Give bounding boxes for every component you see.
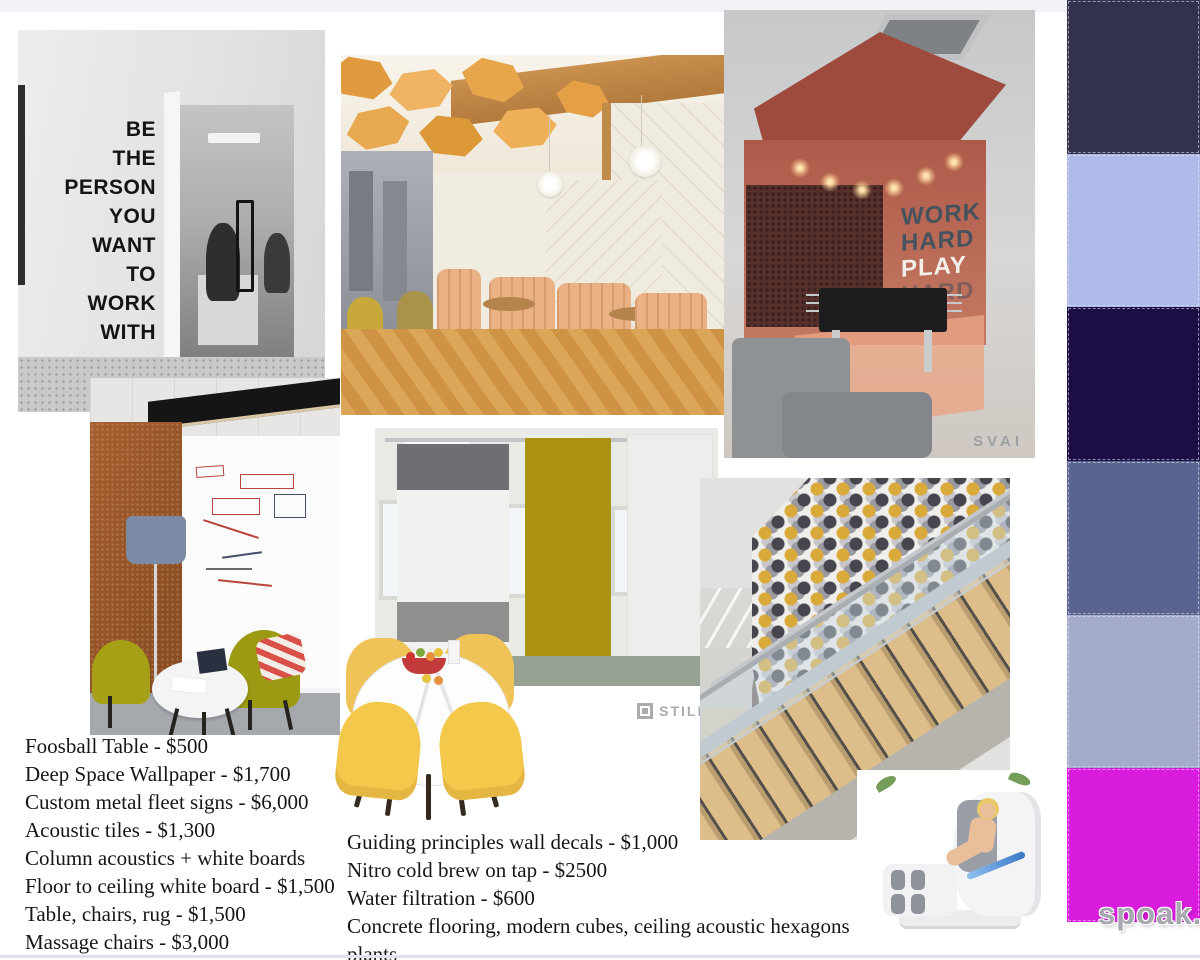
price-line[interactable]: Acoustic tiles - $1,300 [25, 816, 335, 844]
chair-leg [108, 696, 112, 728]
price-list-bottom[interactable]: Guiding principles wall decals - $1,000 … [347, 828, 850, 960]
price-line[interactable]: Table, chairs, rug - $1,500 [25, 900, 335, 928]
decal-line: YOU [38, 202, 156, 231]
marker-scribble [196, 465, 225, 478]
fruit-icon [406, 652, 415, 661]
person-silhouette [264, 233, 290, 293]
price-line[interactable]: Nitro cold brew on tap - $2500 [347, 856, 850, 884]
hex-tile-icon [341, 55, 396, 104]
photo-watermark: STILL [637, 703, 708, 719]
marker-scribble [274, 494, 306, 518]
price-line[interactable]: Column acoustics + white boards [25, 844, 335, 872]
massage-chair-footrest [883, 864, 957, 916]
person-head [980, 803, 995, 819]
color-palette [1067, 0, 1200, 922]
spotlight-icon [916, 166, 936, 186]
marker-scribble [240, 474, 294, 489]
price-line[interactable]: Custom metal fleet signs - $6,000 [25, 788, 335, 816]
chartreuse-acoustic-panel [525, 438, 611, 680]
fruit-icon [434, 648, 443, 657]
spotlight-icon [820, 172, 840, 192]
leaf-icon [1008, 770, 1032, 788]
hex-tile-icon [386, 65, 455, 115]
person-silhouette [206, 223, 240, 301]
price-line[interactable]: Massage chairs - $3,000 [25, 928, 335, 956]
photo-cafe-hex-ceiling[interactable] [341, 55, 725, 415]
booth-table [483, 297, 535, 311]
booth-seat [437, 269, 481, 329]
foot-pad [891, 870, 905, 890]
bottom-edge-line [0, 955, 1200, 958]
person-torso [967, 816, 997, 853]
lamp-cord [549, 115, 550, 173]
price-line[interactable]: Floor to ceiling white board - $1,500 [25, 872, 335, 900]
decal-line: THE [38, 144, 156, 173]
decal-line: WANT [38, 231, 156, 260]
door-frame [164, 91, 180, 383]
marker-scribble [206, 568, 252, 570]
decal-line: WORK [38, 289, 156, 318]
fruit-icon [434, 676, 443, 685]
door-handle [236, 200, 254, 292]
spotlight-icon [944, 152, 964, 172]
hex-tile-icon [342, 101, 413, 155]
price-line[interactable]: Guiding principles wall decals - $1,000 [347, 828, 850, 856]
palette-swatch-deep-indigo[interactable] [1067, 307, 1200, 461]
price-line[interactable]: Water filtration - $600 [347, 884, 850, 912]
palette-swatch-dark-navy[interactable] [1067, 0, 1200, 154]
still-logo-icon [637, 703, 653, 719]
photo-watermark: SVAI [973, 433, 1023, 450]
floor-lamp-pole [154, 564, 157, 682]
palette-swatch-lavender-gray[interactable] [1067, 615, 1200, 769]
ac-unit [208, 133, 260, 143]
lamp-cord [641, 95, 642, 147]
spoak-watermark: spoak. [1098, 896, 1200, 932]
pendant-lamp-icon [629, 145, 661, 177]
photo-table-yellow-chairs[interactable] [330, 612, 530, 812]
photo-whiteboard-corner[interactable] [90, 378, 340, 735]
palette-swatch-slate-blue[interactable] [1067, 461, 1200, 615]
marker-scribble [212, 498, 260, 515]
spotlight-icon [790, 158, 810, 178]
price-line[interactable]: Deep Space Wallpaper - $1,700 [25, 760, 335, 788]
fruit-icon [422, 674, 431, 683]
leaf-icon [874, 773, 898, 793]
decal-line: BE [38, 115, 156, 144]
decal-line: WITH [38, 318, 156, 347]
price-line[interactable]: Foosball Table - $500 [25, 732, 335, 760]
hex-tile-icon [457, 55, 529, 108]
spotlight-icon [852, 180, 872, 200]
gray-panel-band [397, 444, 509, 490]
herringbone-floor [341, 329, 725, 415]
marker-scribble [218, 579, 272, 587]
wall-decal-text: BE THE PERSON YOU WANT TO WORK WITH [38, 115, 156, 347]
tablet [197, 648, 228, 674]
palette-swatch-periwinkle[interactable] [1067, 154, 1200, 308]
fruit-icon [416, 648, 425, 657]
papers [171, 677, 206, 694]
foosball-table [819, 288, 947, 332]
spotlight-icon [884, 178, 904, 198]
foosball-leg [924, 330, 932, 372]
marker-scribble [203, 519, 259, 539]
foot-pad [911, 870, 925, 890]
photo-game-room[interactable]: WORK HARD PLAY HARD SVAI [724, 10, 1035, 458]
vase [448, 640, 460, 664]
pendant-lamp-icon [537, 171, 563, 197]
foot-pad [911, 894, 925, 914]
building-silhouette [349, 171, 373, 291]
gray-sofa-seat [782, 392, 932, 458]
foot-pad [891, 894, 905, 914]
decal-line: PERSON [38, 173, 156, 202]
marker-scribble [222, 551, 262, 559]
photo-massage-chair[interactable] [857, 770, 1063, 942]
mood-board: BE THE PERSON YOU WANT TO WORK WITH [0, 0, 1200, 960]
decal-line: TO [38, 260, 156, 289]
chair-leg [248, 700, 252, 730]
floor-lamp-shade [126, 516, 186, 564]
price-list-left[interactable]: Foosball Table - $500 Deep Space Wallpap… [25, 732, 335, 956]
photo-wall-decal-quote[interactable]: BE THE PERSON YOU WANT TO WORK WITH [18, 30, 325, 412]
olive-armchair [92, 640, 150, 704]
price-line[interactable]: Concrete flooring, modern cubes, ceiling… [347, 912, 850, 940]
chair-leg [426, 774, 431, 820]
window-frame [18, 85, 25, 285]
